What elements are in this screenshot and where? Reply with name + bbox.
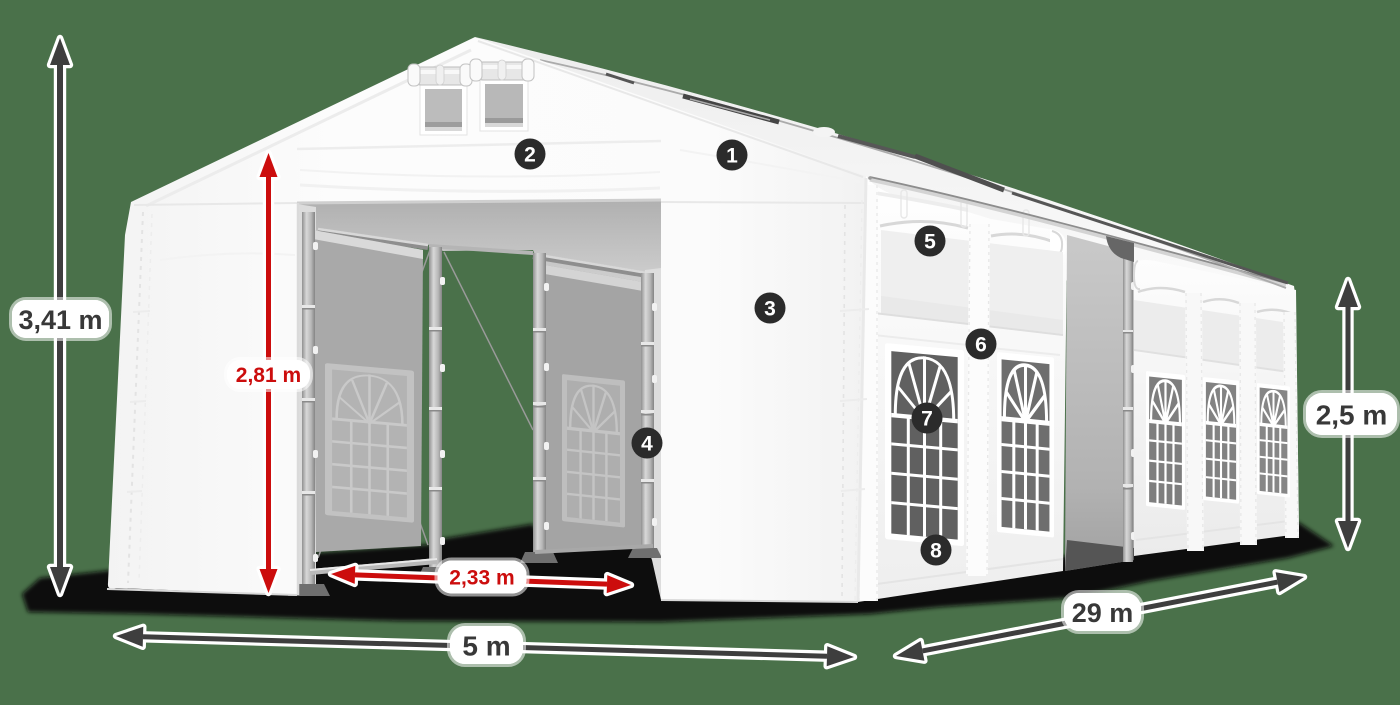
svg-text:5 m: 5 m (462, 631, 510, 662)
svg-text:8: 8 (930, 540, 942, 563)
svg-text:29 m: 29 m (1072, 598, 1134, 628)
svg-text:7: 7 (921, 408, 933, 431)
svg-text:6: 6 (975, 334, 987, 357)
svg-text:4: 4 (641, 433, 653, 456)
svg-text:3,41 m: 3,41 m (18, 305, 102, 335)
svg-text:1: 1 (726, 145, 738, 168)
svg-text:2,33 m: 2,33 m (449, 567, 514, 590)
svg-text:2: 2 (524, 144, 536, 167)
svg-text:3: 3 (764, 298, 776, 321)
svg-text:2,5 m: 2,5 m (1316, 400, 1388, 431)
svg-text:2,81 m: 2,81 m (236, 364, 301, 387)
svg-text:5: 5 (924, 231, 936, 254)
